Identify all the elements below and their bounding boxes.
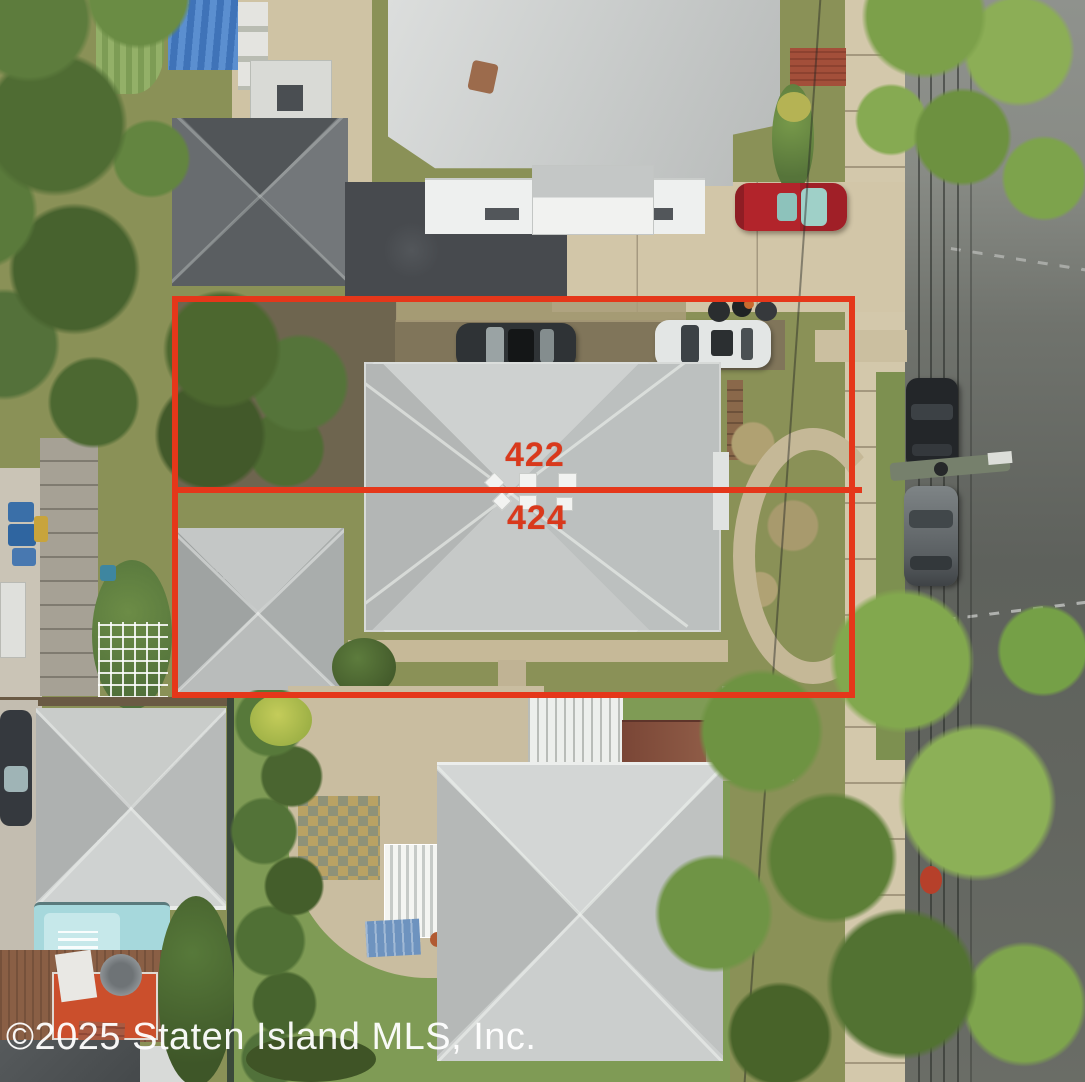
blue-rug [365,919,421,958]
walkway-to-sidewalk [815,330,907,362]
red-hydrant [920,866,942,894]
white-panel [55,950,97,1003]
aerial-photo: 422 424 ©2025 Staten Island MLS, Inc. [0,0,1085,1082]
lot422-front-path [396,300,686,322]
car-sunroof [508,329,534,363]
red-suv [735,183,847,231]
lot-outline-right [849,296,855,698]
car-windshield [909,510,953,528]
window [485,208,519,220]
parked-car-corner [0,710,32,826]
watermark: ©2025 Staten Island MLS, Inc. [6,1016,536,1059]
white-trailer [0,582,26,658]
lot-outline-top [172,296,855,302]
tree-canopy-top-right [835,0,1085,275]
trash-bin [755,301,777,321]
car-rear-window [912,444,952,456]
trash-bin [708,300,730,322]
lot-label-422: 422 [505,436,565,475]
white-car [655,320,771,368]
lot-outline-bottom [172,692,855,698]
round-table [100,954,142,996]
lot-label-424: 424 [507,499,567,538]
lot-divider-line [172,487,862,493]
car-sunroof [711,330,733,356]
car-rear-window [741,328,753,360]
parked-car-black [906,378,958,470]
top-house-roof [388,0,780,192]
crossarm-tip [988,451,1013,465]
teal-bin [100,565,116,581]
car-rear-window [910,556,952,570]
blue-bin [12,548,36,566]
top-house-porch [532,165,654,235]
roof-vent [519,473,537,488]
car-rear-window [540,329,554,363]
suv-sunroof [777,193,797,221]
garage-pyramid-roof [172,528,344,696]
roof-vent [558,473,577,488]
car-windshield [681,325,699,363]
yellow-green-bush [250,694,312,746]
car-windshield [911,404,953,420]
car-windshield [4,766,28,792]
car-windshield [486,327,504,365]
yellow-bush [777,92,811,122]
garden-lattice [98,622,168,698]
pole-top [934,462,948,476]
parked-car-silver [904,486,958,586]
shed-opening [277,85,303,111]
bottom-left-house-roof [36,708,226,910]
lot-outline-left [172,296,178,698]
